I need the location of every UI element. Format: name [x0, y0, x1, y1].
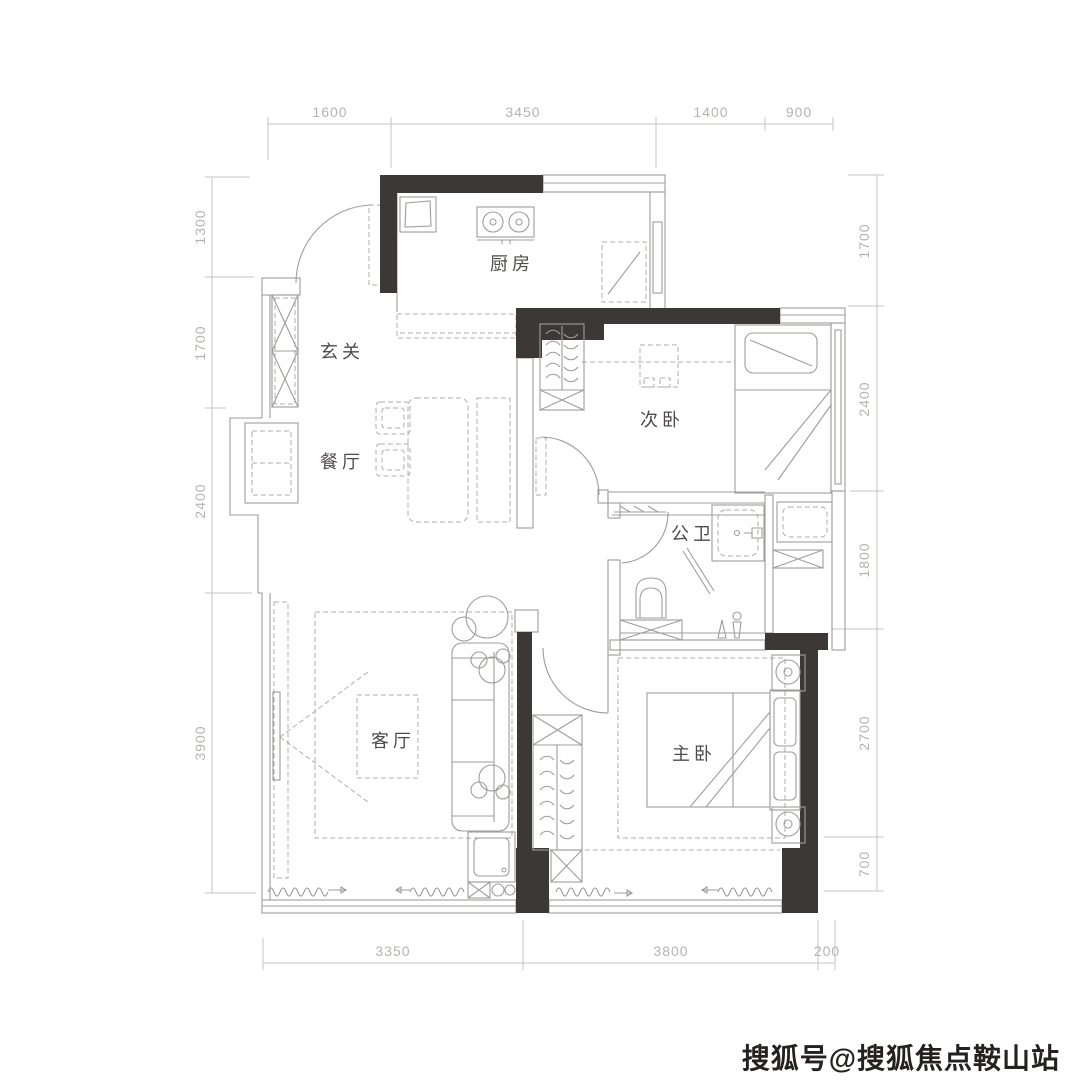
- bath-cabinet-inner: [783, 507, 827, 537]
- dim-right-1700: 1700: [856, 223, 872, 258]
- shower-glass-symbol: [683, 548, 714, 594]
- dimension-lines: [205, 117, 884, 970]
- dim-left-3900: 3900: [192, 725, 208, 760]
- dim-right-700: 700: [856, 851, 872, 877]
- dim-left-1300: 1300: [192, 209, 208, 244]
- dining-chair-symbol: [376, 402, 410, 434]
- dim-left-2400: 2400: [192, 483, 208, 518]
- floorplan-page: 1600 3450 1400 900 3350 3800 200 1300 17…: [0, 0, 1080, 1080]
- living-ceiling-dashed: [315, 612, 512, 838]
- floorplan-drawing: 1600 3450 1400 900 3350 3800 200 1300 17…: [0, 0, 1080, 1080]
- dining-chair-symbol: [376, 444, 410, 476]
- dim-top-900: 900: [786, 104, 812, 120]
- dim-top-1400: 1400: [693, 104, 728, 120]
- dining-cabinet-symbol: [477, 398, 510, 522]
- vanity-symbol: [712, 505, 764, 561]
- wall-outlines: [230, 175, 845, 913]
- room-label-bathroom: 公卫: [671, 524, 715, 544]
- dim-bottom-200: 200: [814, 943, 840, 959]
- dim-right-2700: 2700: [856, 715, 872, 750]
- room-label-bedroom2: 次卧: [640, 410, 684, 430]
- plant-symbol: [479, 657, 505, 683]
- dim-right-2400: 2400: [856, 381, 872, 416]
- dining-table-symbol: [408, 398, 468, 522]
- room-label-entry: 玄关: [320, 342, 364, 362]
- bedroom2-door-arc: [541, 437, 599, 495]
- tv-console-dashed: [274, 602, 288, 878]
- plant-symbol: [479, 765, 505, 791]
- faucet-symbol: [744, 528, 762, 538]
- entry-door-arc: [296, 205, 371, 283]
- bedroom2-door-leaf: [536, 438, 546, 495]
- dim-right-1800: 1800: [856, 542, 872, 577]
- sofa-symbol: [452, 643, 509, 831]
- bathroom-door-arc: [622, 512, 668, 563]
- room-label-master: 主卧: [672, 744, 716, 764]
- room-label-living: 客厅: [371, 731, 415, 751]
- dim-top-1600: 1600: [312, 104, 347, 120]
- room-label-dining: 餐厅: [320, 452, 364, 472]
- dim-bottom-3800: 3800: [653, 943, 688, 959]
- dim-bottom-3350: 3350: [375, 943, 410, 959]
- desk-symbol: [640, 345, 678, 387]
- structural-walls: [380, 175, 828, 913]
- dashed-projections: [252, 205, 827, 878]
- room-label-kitchen: 厨房: [490, 254, 534, 274]
- dim-left-1700: 1700: [192, 325, 208, 360]
- entry-door-leaf: [369, 205, 381, 285]
- furniture: [268, 197, 832, 898]
- watermark-text: 搜狐号@搜狐焦点鞍山站: [742, 1042, 1060, 1074]
- kitchen-counter-dashed: [397, 314, 516, 338]
- master-door-arc: [543, 648, 608, 713]
- bath-decor: [733, 612, 741, 620]
- dim-top-3450: 3450: [505, 104, 540, 120]
- side-table-symbol: [466, 596, 508, 638]
- stove-symbol: [477, 207, 534, 237]
- tv-view-lines: [280, 672, 368, 802]
